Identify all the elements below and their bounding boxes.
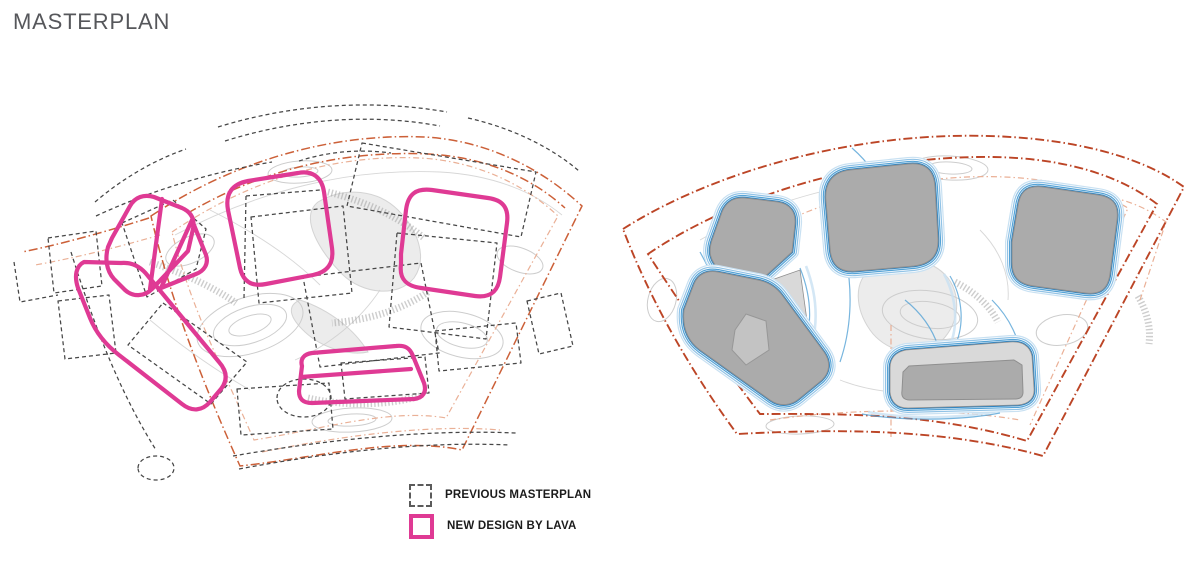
left-plan bbox=[14, 105, 582, 480]
contour-line bbox=[416, 303, 508, 366]
legend: PREVIOUS MASTERPLAN NEW DESIGN BY LAVA bbox=[409, 482, 591, 544]
dashed-square-icon bbox=[409, 484, 432, 507]
masterplan-page: { "page": { "title": "MASTERPLAN" }, "le… bbox=[0, 0, 1200, 564]
contour-line bbox=[1034, 311, 1090, 350]
masterplan-drawing bbox=[0, 0, 1200, 564]
building-e-footprint bbox=[902, 360, 1023, 400]
legend-item-new: NEW DESIGN BY LAVA bbox=[409, 513, 591, 539]
legend-item-previous: PREVIOUS MASTERPLAN bbox=[409, 482, 591, 508]
building-c-footprint bbox=[1012, 187, 1117, 294]
contour-line bbox=[189, 281, 311, 368]
building-c bbox=[1012, 187, 1117, 294]
building-b-footprint bbox=[826, 164, 938, 272]
legend-label-previous: PREVIOUS MASTERPLAN bbox=[445, 489, 591, 501]
building-b bbox=[826, 164, 938, 272]
contour-line bbox=[226, 310, 273, 341]
contour-line bbox=[643, 275, 681, 325]
contour-line bbox=[208, 296, 291, 354]
new-design-buildings bbox=[76, 172, 507, 409]
building-e bbox=[890, 342, 1034, 408]
legend-label-new: NEW DESIGN BY LAVA bbox=[447, 520, 576, 532]
contour-line bbox=[434, 317, 490, 353]
pink-outline-square-icon bbox=[409, 514, 434, 539]
right-plan bbox=[623, 136, 1184, 456]
